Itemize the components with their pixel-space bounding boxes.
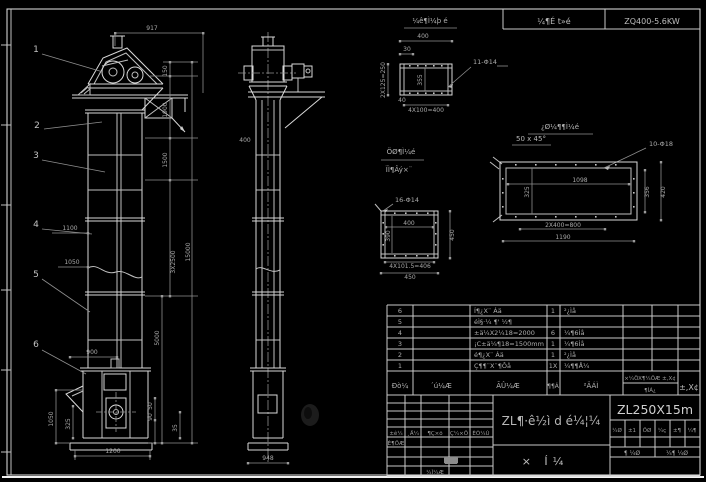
rev-header-zone: ¶Ç×ö [427,431,443,437]
bom-table: 6 Í¶¿X¨ Áä 1 ²¿Ìå 5 éÌ§·¼ ¶' ½¶ 4 ±ä¼X2¼… [387,305,700,476]
sheet-total: ¶ ¼Ø [624,450,641,457]
dim-90: 90 [147,413,154,421]
bom-row-no: 3 [398,340,402,348]
detail-c-dim-1098: 1098 [572,177,587,184]
rev-header-count: ¸Ä¼ [407,430,420,437]
dim-400-side: 400 [239,137,251,144]
bom-row-qty: 1 [551,351,555,359]
bom-row-no: 6 [398,307,402,315]
bom-row-no: 5 [398,318,402,326]
bom-row-no: 4 [398,329,402,337]
bom-row-name: éÌ§·¼ ¶' ½¶ [474,317,512,326]
detail-a-dim-30: 30 [403,46,411,53]
detail-channel: ¼ê¶Ì¼þ é 400 30 355 2X125=250 40 11-Φ14 [380,16,551,145]
detail-c-dim-row2: 1190 [555,234,570,241]
tb-small-cell: ¼ç [658,428,666,434]
bom-row-name: Í¶¿X¨ Áä [474,306,502,315]
detail-c-holes-label: 10-Φ18 [649,140,673,148]
detail-b-label1: ÖØ¶Ì¼é [387,147,416,156]
bom-header-code: ´ú¼Æ [430,382,452,390]
bom-row-qty: 6 [551,329,555,337]
detail-a-dim-400: 400 [417,33,429,40]
dim-325-boot: 325 [65,418,72,430]
titleblock-design-label: É¶ÖÆ [388,439,405,447]
bom-header-name: ÃÛ¼Æ [496,381,520,390]
dim-1500: 1500 [162,152,169,167]
front-view-balloons: 1 2 3 4 5 6 [33,45,105,374]
bom-row-name: Ç¶¶¨X¨¶Ôå [474,361,511,370]
detail-flange: ÖØ¶Ì¼é ÏÌ¶Âý×¨ 16-Φ14 400 390 4X101.5=40… [375,147,456,281]
approval-stamp [444,457,458,464]
model-number: ZL250X15m [617,402,693,417]
bom-header-qty: ¶¶Á [547,383,560,390]
tb-small-cell: ¼¶ [688,428,697,434]
bom-row-no: 1 [398,362,402,370]
front-view-dimensions: 917 150 1900 1500 3X2500 5000 15000 1100… [48,25,204,460]
bom-header-unitweight: ¶ÌÁ¿ [644,387,656,394]
balloon-6: 6 [33,340,39,350]
bom-header-material: ²ÄÁÌ [584,381,599,390]
tb-small-cell: ÖØ [643,427,652,434]
bom-row-no: 2 [398,351,402,359]
bom-header-no: Ðò¼ [392,382,409,390]
detail-b-dim-400: 400 [403,220,415,227]
bom-row-name: é¶¿X¨ Áä [474,350,504,359]
detail-c-dim-325: 325 [524,186,531,198]
bom-row-material: ¼¶6Ìå [564,339,584,348]
bom-row-qty: 1 [551,340,555,348]
detail-a-dim-bottom: 4X100=400 [408,107,444,114]
detail-c-dim-row1: 2X400=800 [545,222,581,229]
dim-917: 917 [146,25,158,32]
drawing-subtitle: × Í¼ [522,455,569,468]
balloon-4: 4 [33,220,39,230]
detail-b-dim-right: 450 [449,229,456,241]
detail-c-label: ¿Ø¼¶¶Ì¼é [541,122,579,131]
dim-50: 50 [147,402,154,410]
dim-900: 900 [86,349,98,356]
sheet-number: ¼¶ ¼Ø [666,450,688,457]
drawing-title: ZL¶·ê½ì d é¼¦¼ [502,414,601,428]
title-block: ±ê¼ ¸Ä¼ ¶Ç×ö Ç¼×Ö ÈÕ¼Ú É¶ÖÆ ¼Ì¼Æ ZL¶·ê½ì… [387,395,700,476]
top-header: ¼¶É t»é ZQ400-5.6KW [503,9,700,29]
bom-row-qty: 1 [551,307,555,315]
cad-drawing: ¼¶É t»é ZQ400-5.6KW [0,0,706,482]
header-model-cell: ZQ400-5.6KW [624,17,680,26]
bom-row-material: ²¿Ìå [564,306,576,315]
detail-b-dim-row1: 4X101.5=406 [389,263,431,270]
tb-small-cell: ¼Ø [612,427,622,434]
bom-row-name: ±ä¼X2¼18=2000 [474,329,535,337]
tb-small-cell: ±¶ [673,428,681,434]
bom-row-material: ¼¶6Ìå [564,328,584,337]
bom-header-weight: ×¼ÖX¶¼ÖÆ ±,X¢ [624,375,676,382]
detail-b-dim-row2: 450 [404,274,416,281]
rev-header-mark: ±ê¼ [389,430,403,437]
dim-boot-1050: 1050 [48,411,55,426]
dim-1200: 1200 [105,448,120,455]
chamfer-note: 50 x 45° [516,135,546,143]
titleblock-check-label: ¼Ì¼Æ [426,469,444,476]
detail-b-holes-label: 16-Φ14 [395,196,419,204]
balloon-3: 3 [33,151,39,161]
detail-c-dim-356: 356 [644,186,651,198]
header-left-cell: ¼¶É t»é [537,15,570,26]
bom-row-name: ¡C±ä¼¶18=1500mm [474,340,544,348]
bom-header-remark: ±,X¢ [679,383,699,392]
bom-row-material: ²¿Ìå [564,350,576,359]
dim-1900: 1900 [162,102,169,117]
dim-3x2500: 3X2500 [170,250,177,273]
tb-small-cell: ±1 [628,428,636,434]
smudge-artifact [301,404,319,426]
bom-row-material: ¼¶¶Å¼ [564,361,590,370]
cad-canvas[interactable]: ¼¶É t»é ZQ400-5.6KW [0,0,706,482]
bom-row-qty: 1X [549,362,558,370]
dim-1100: 1100 [62,225,77,232]
dim-150: 150 [162,65,169,77]
side-view: 400 948 [238,32,325,464]
dim-15000: 15000 [185,242,192,261]
detail-a-title: ¼ê¶Ì¼þ é [412,16,447,25]
dim-948: 948 [262,455,274,462]
dim-5000: 5000 [154,330,161,345]
detail-a-dim-40: 40 [398,97,406,104]
detail-a-holes-label: 11-Φ14 [473,58,497,66]
detail-a-dim-355: 355 [417,74,424,86]
detail-a-dim-left: 2X125=250 [380,62,387,98]
detail-b-label2: ÏÌ¶Âý×¨ [386,165,412,174]
dim-35: 35 [172,424,179,432]
balloon-2: 2 [34,121,40,131]
dim-1050-mid: 1050 [64,259,79,266]
rev-header-sign: Ç¼×Ö [450,430,469,437]
balloon-1: 1 [33,45,39,55]
detail-c-dim-420: 420 [660,186,667,198]
rev-header-date: ÈÕ¼Ú [472,429,489,437]
balloon-5: 5 [33,270,39,280]
detail-b-dim-390: 390 [385,230,392,242]
